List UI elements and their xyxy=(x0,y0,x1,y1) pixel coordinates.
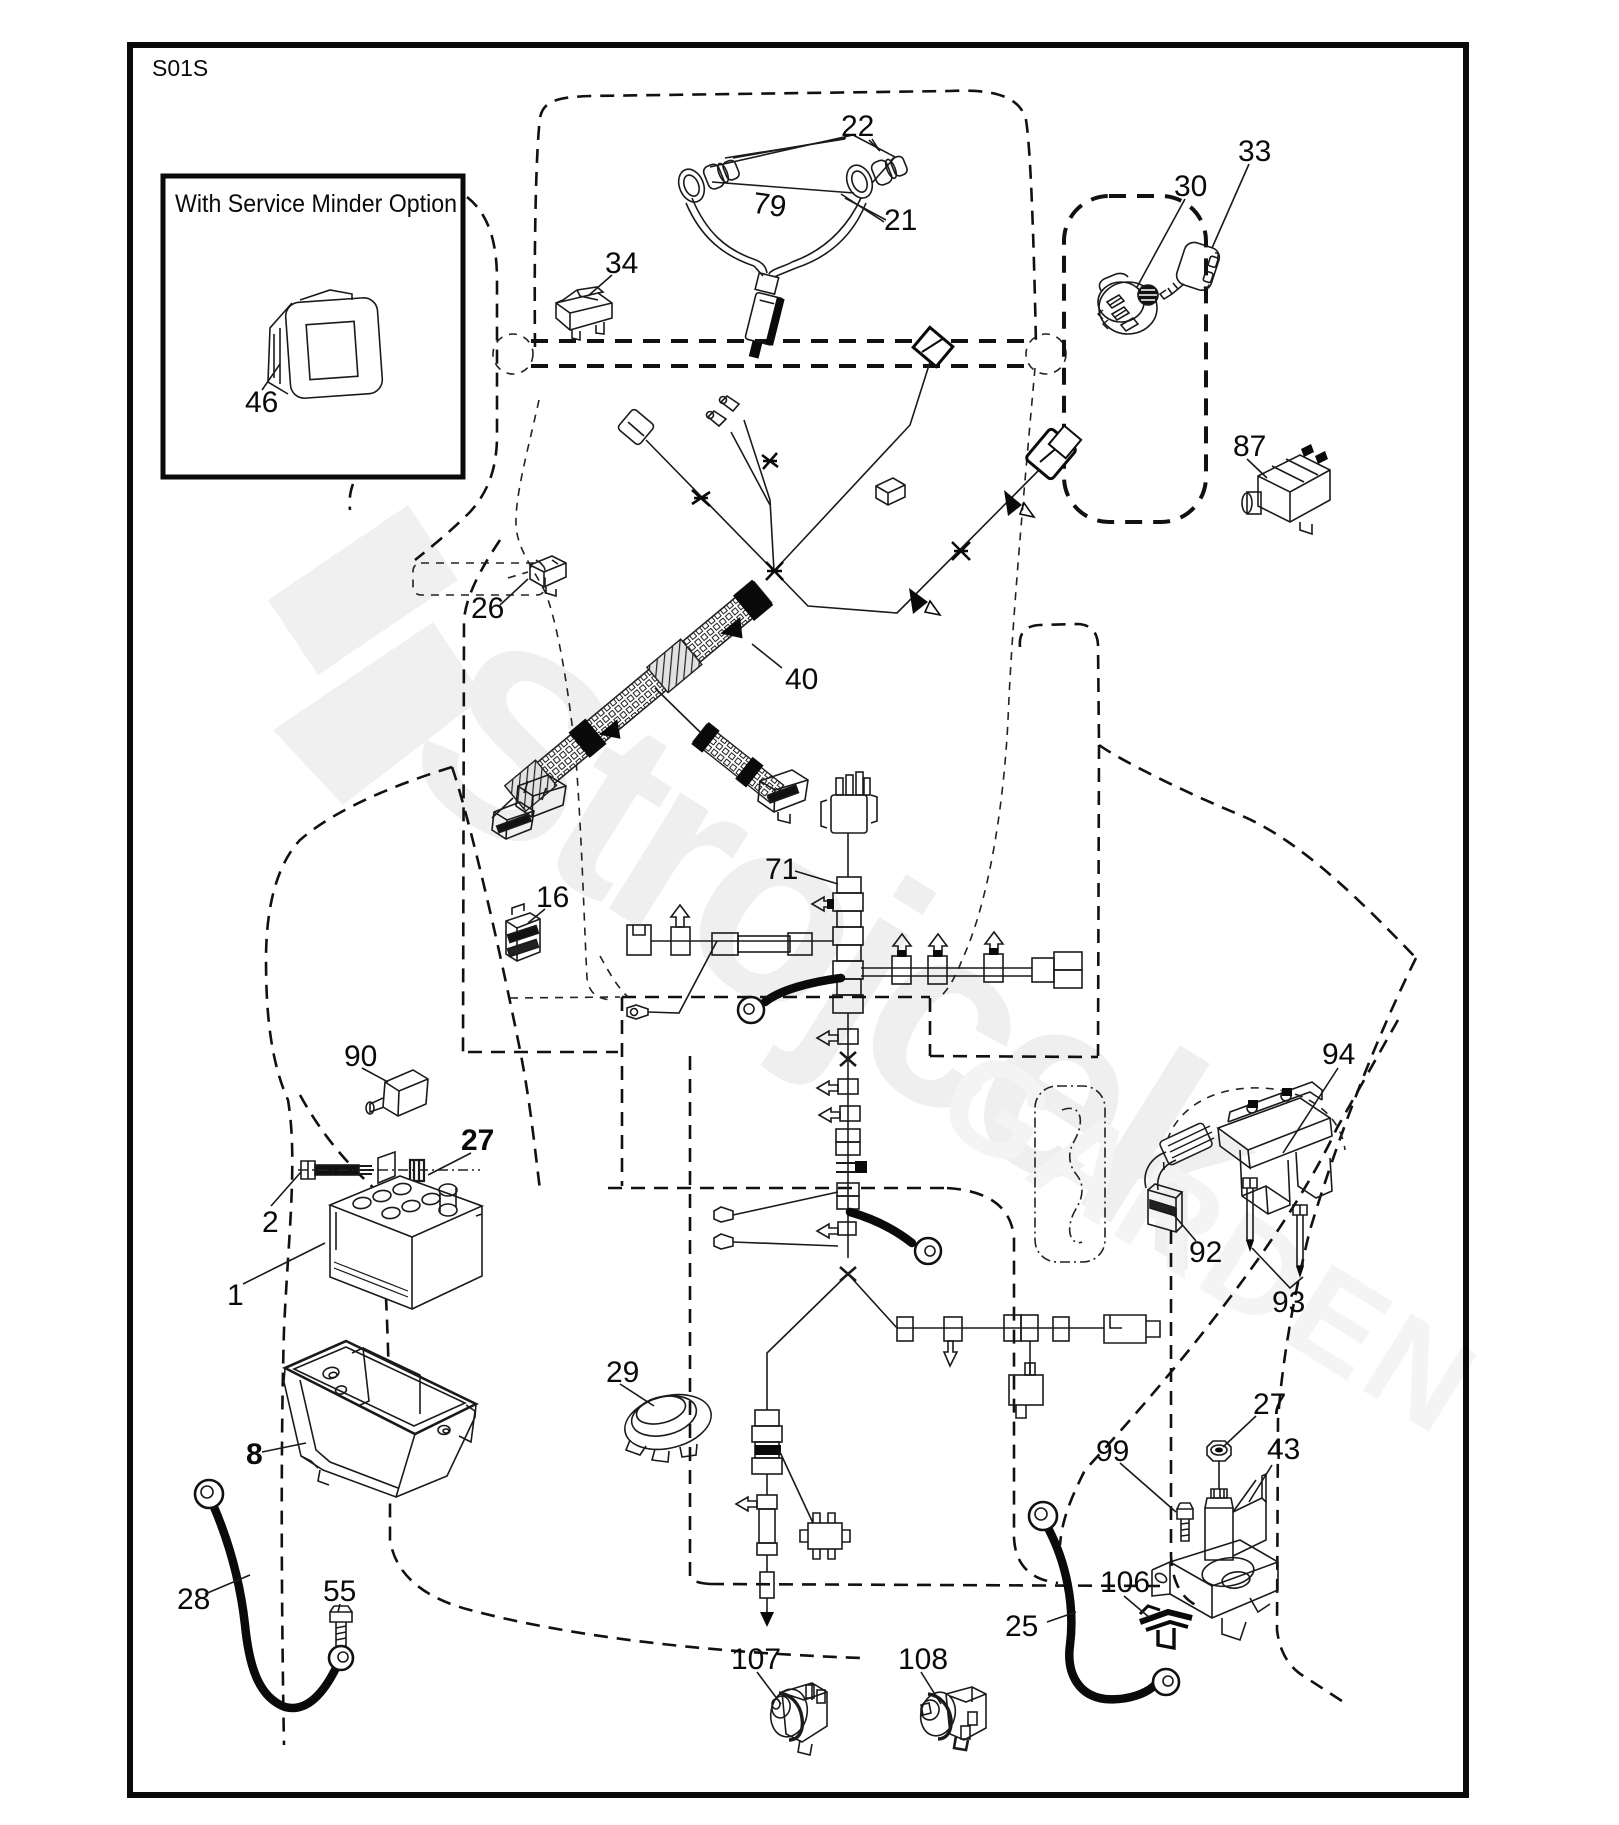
svg-text:108: 108 xyxy=(898,1643,948,1676)
svg-text:43: 43 xyxy=(1267,1433,1300,1466)
svg-text:46: 46 xyxy=(245,386,278,419)
svg-text:22: 22 xyxy=(841,110,874,143)
svg-text:90: 90 xyxy=(344,1040,377,1073)
svg-text:93: 93 xyxy=(1272,1286,1305,1319)
svg-text:33: 33 xyxy=(1238,135,1271,168)
svg-text:1: 1 xyxy=(227,1279,244,1312)
svg-text:71: 71 xyxy=(765,853,798,886)
svg-text:25: 25 xyxy=(1005,1610,1038,1643)
svg-text:99: 99 xyxy=(1096,1435,1129,1468)
svg-text:34: 34 xyxy=(605,247,638,280)
svg-text:8: 8 xyxy=(246,1438,263,1471)
svg-text:21: 21 xyxy=(884,204,917,237)
svg-text:26: 26 xyxy=(471,592,504,625)
svg-text:55: 55 xyxy=(323,1575,356,1608)
svg-text:28: 28 xyxy=(177,1583,210,1616)
svg-text:40: 40 xyxy=(785,663,818,696)
svg-text:2: 2 xyxy=(262,1206,279,1239)
svg-text:92: 92 xyxy=(1189,1236,1222,1269)
svg-text:79: 79 xyxy=(751,187,789,224)
svg-text:107: 107 xyxy=(731,1643,781,1676)
svg-text:27: 27 xyxy=(461,1124,494,1157)
svg-text:30: 30 xyxy=(1174,170,1207,203)
svg-text:S01S: S01S xyxy=(152,55,208,81)
svg-text:106: 106 xyxy=(1100,1566,1150,1599)
svg-text:16: 16 xyxy=(536,881,569,914)
svg-text:27: 27 xyxy=(1253,1388,1286,1421)
svg-text:29: 29 xyxy=(606,1356,639,1389)
svg-text:With Service Minder Option: With Service Minder Option xyxy=(175,190,457,218)
svg-text:87: 87 xyxy=(1233,430,1266,463)
svg-text:94: 94 xyxy=(1322,1038,1355,1071)
